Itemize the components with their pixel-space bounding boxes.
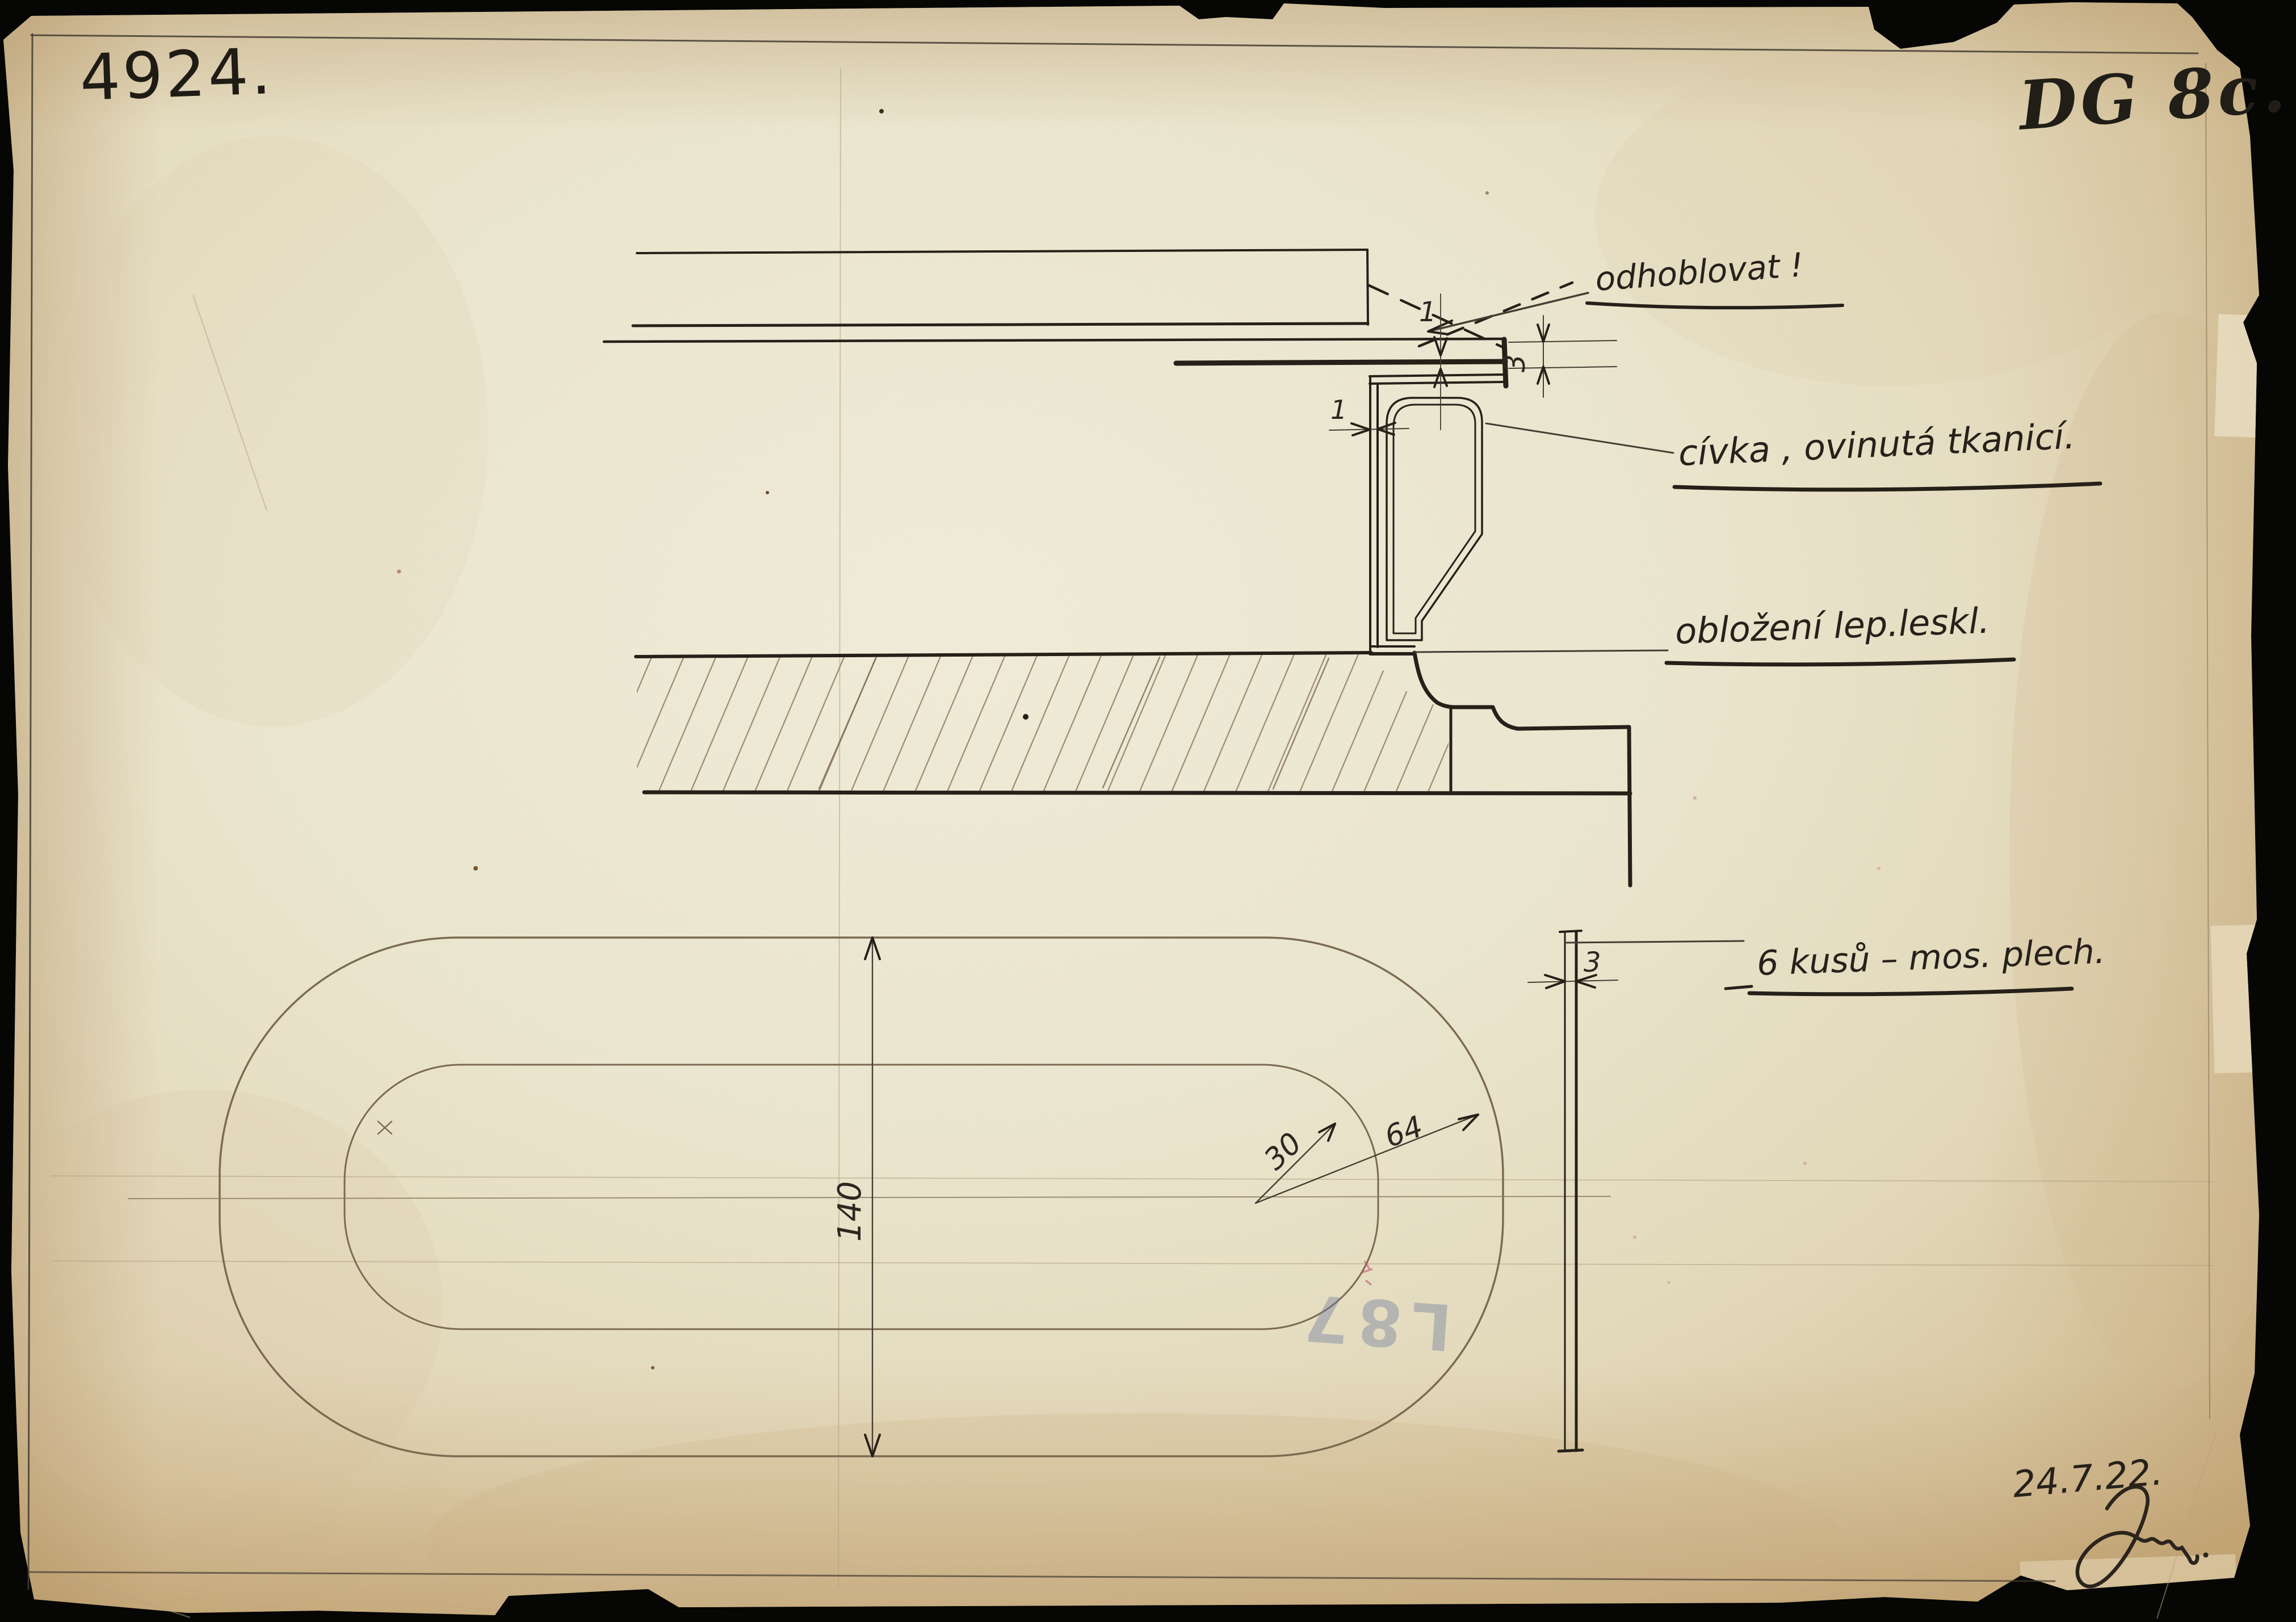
speck: [1485, 191, 1489, 195]
molding-right-edge: [1629, 727, 1630, 885]
speck: [397, 570, 401, 574]
drawing-number: 4924.: [78, 35, 274, 115]
speck: [766, 491, 769, 494]
strip-top-cap: [1560, 931, 1581, 932]
speck: [879, 109, 884, 114]
torn-flap: [2020, 1554, 2238, 1612]
base-bottom-line: [644, 792, 1630, 793]
signature-dot: [2203, 1553, 2209, 1558]
speck: [1633, 1236, 1636, 1239]
speck: [473, 866, 478, 871]
scan-background: 4924. DG 8c.: [0, 0, 2296, 1622]
speck: [1023, 714, 1029, 720]
dim-stack-value: 3: [1499, 354, 1531, 372]
dim-plate-sheet-value: 1: [1419, 296, 1437, 328]
paper-texture: [0, 0, 2296, 1622]
paper-grain: [0, 0, 2296, 1622]
tape-piece: [2214, 314, 2269, 438]
stamp-text: L87: [1293, 1279, 1454, 1364]
body-right-edge: [1367, 250, 1368, 325]
hatch-fill: [637, 654, 1449, 791]
dim-height-value: 140: [832, 1181, 868, 1242]
speck: [1877, 867, 1881, 870]
dim-wall-value: 1: [1330, 394, 1347, 425]
speck: [1803, 1162, 1807, 1165]
dim-strip-value: 3: [1584, 947, 1601, 978]
speck: [1693, 796, 1697, 800]
speck: [1668, 1281, 1670, 1284]
speck: [651, 1366, 654, 1369]
blueprint-sheet-svg: 4924. DG 8c.: [0, 0, 2296, 1622]
plate-bottom-line: [1176, 362, 1505, 363]
strip-bottom-cap: [1559, 1450, 1583, 1451]
tape-piece: [2211, 925, 2272, 1074]
